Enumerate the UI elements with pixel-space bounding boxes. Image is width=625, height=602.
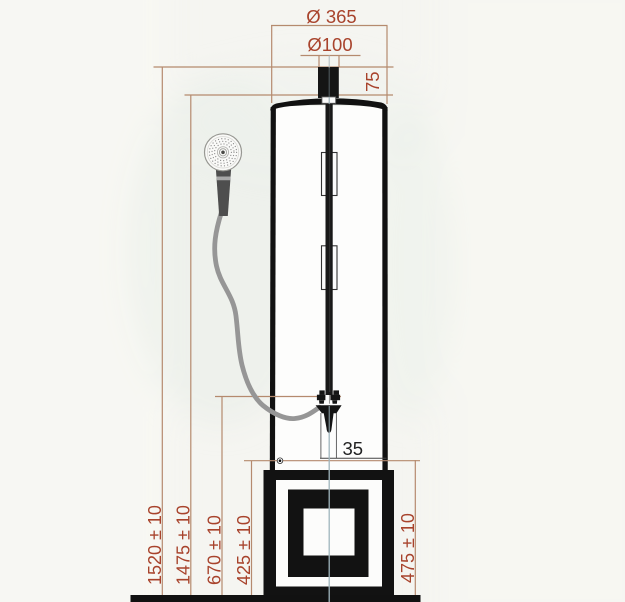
svg-text:75: 75 bbox=[362, 71, 383, 92]
svg-text:Ø 365: Ø 365 bbox=[306, 6, 356, 27]
svg-text:Ø100: Ø100 bbox=[307, 34, 352, 55]
svg-text:1520 ± 10: 1520 ± 10 bbox=[145, 505, 165, 585]
svg-text:670 ± 10: 670 ± 10 bbox=[205, 515, 225, 585]
svg-text:425 ± 10: 425 ± 10 bbox=[234, 515, 254, 585]
svg-text:475 ± 10: 475 ± 10 bbox=[398, 513, 418, 583]
svg-text:1475 ± 10: 1475 ± 10 bbox=[173, 505, 193, 585]
svg-text:35: 35 bbox=[343, 438, 364, 459]
